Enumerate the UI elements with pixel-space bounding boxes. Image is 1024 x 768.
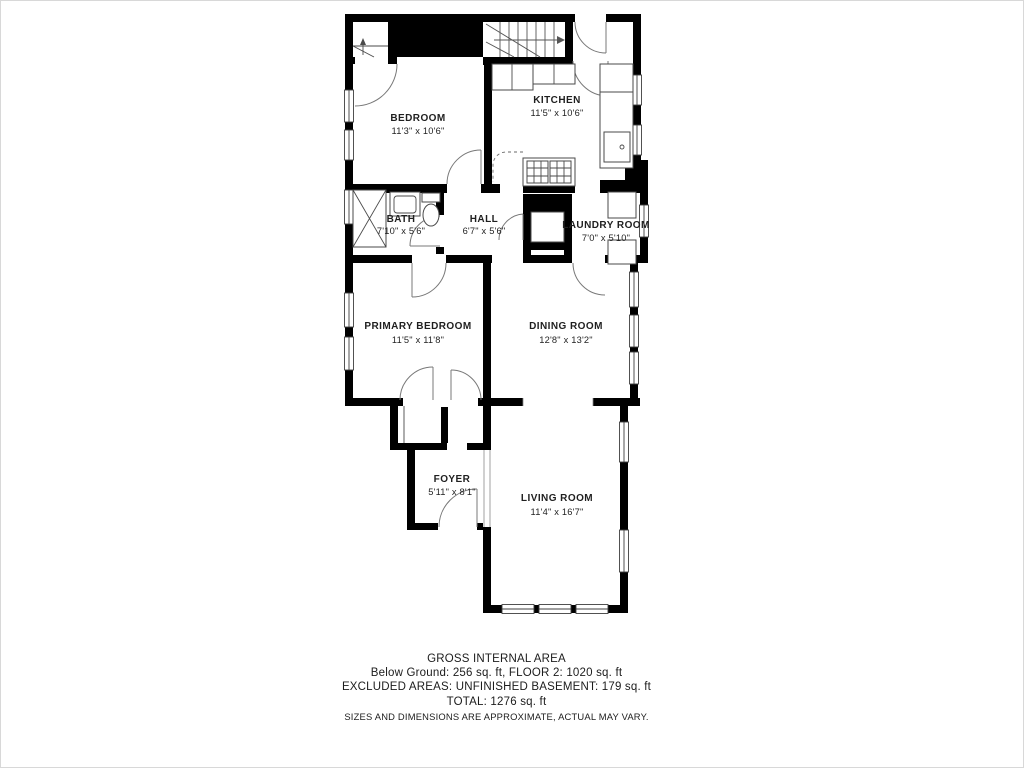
toilet-tank xyxy=(422,193,440,202)
french-door-right-arc xyxy=(451,370,481,400)
washer xyxy=(608,192,636,218)
room-label-dining-room: DINING ROOM xyxy=(529,321,603,332)
wall-openings xyxy=(355,13,608,531)
room-dims-hall: 6'7" x 5'6" xyxy=(463,226,506,236)
entry-door-arc xyxy=(575,22,606,53)
toilet-bowl xyxy=(423,204,439,226)
room-label-bedroom: BEDROOM xyxy=(390,113,445,124)
room-dims-laundry: 7'0" x 5'10" xyxy=(582,233,630,243)
area-summary-total: TOTAL: 1276 sq. ft xyxy=(0,695,993,709)
area-summary-line: EXCLUDED AREAS: UNFINISHED BASEMENT: 179… xyxy=(0,680,993,694)
room-dims-dining-room: 12'8" x 13'2" xyxy=(539,335,593,345)
room-label-laundry: LAUNDRY ROOM xyxy=(562,220,650,231)
primary-door-arc xyxy=(412,263,446,297)
area-summary-line: Below Ground: 256 sq. ft, FLOOR 2: 1020 … xyxy=(0,666,993,680)
room-label-foyer: FOYER xyxy=(434,474,471,485)
room-label-primary-bedroom: PRIMARY BEDROOM xyxy=(364,321,471,332)
bedroom-door-arc xyxy=(447,150,481,184)
room-dims-kitchen: 11'5" x 10'6" xyxy=(531,108,584,118)
future-counter-outline xyxy=(493,152,523,182)
floor-plan-image: BEDROOM 11'3" x 10'6" KITCHEN 11'5" x 10… xyxy=(0,0,1024,768)
room-label-living-room: LIVING ROOM xyxy=(521,493,593,504)
french-door-left-arc xyxy=(400,367,433,400)
kitchen-counter xyxy=(492,64,533,90)
area-summary: GROSS INTERNAL AREA Below Ground: 256 sq… xyxy=(0,652,993,723)
room-dims-living-room: 11'4" x 16'7" xyxy=(531,507,584,517)
laundry-door-arc xyxy=(573,263,605,295)
room-dims-bedroom: 11'3" x 10'6" xyxy=(392,126,445,136)
refrigerator xyxy=(600,64,633,92)
closet-detail xyxy=(353,38,388,57)
room-dims-primary-bedroom: 11'5" x 11'8" xyxy=(392,335,444,345)
hall-closet xyxy=(531,212,564,242)
dryer xyxy=(608,240,636,264)
closet-arrow-icon xyxy=(360,38,366,45)
area-summary-disclaimer: SIZES AND DIMENSIONS ARE APPROXIMATE, AC… xyxy=(0,710,993,723)
room-dims-bath: 7'10" x 5'6" xyxy=(377,226,425,236)
room-dims-foyer: 5'11" x 8'1" xyxy=(428,487,476,497)
area-summary-title: GROSS INTERNAL AREA xyxy=(0,652,993,666)
kitchen-sink xyxy=(604,132,630,162)
room-label-bath: BATH xyxy=(387,214,416,225)
kitchen-fixtures xyxy=(492,64,633,186)
room-label-hall: HALL xyxy=(470,214,498,225)
room-label-kitchen: KITCHEN xyxy=(533,95,581,106)
closet-door-arc xyxy=(355,64,397,106)
stair-arrow-icon xyxy=(557,36,565,44)
